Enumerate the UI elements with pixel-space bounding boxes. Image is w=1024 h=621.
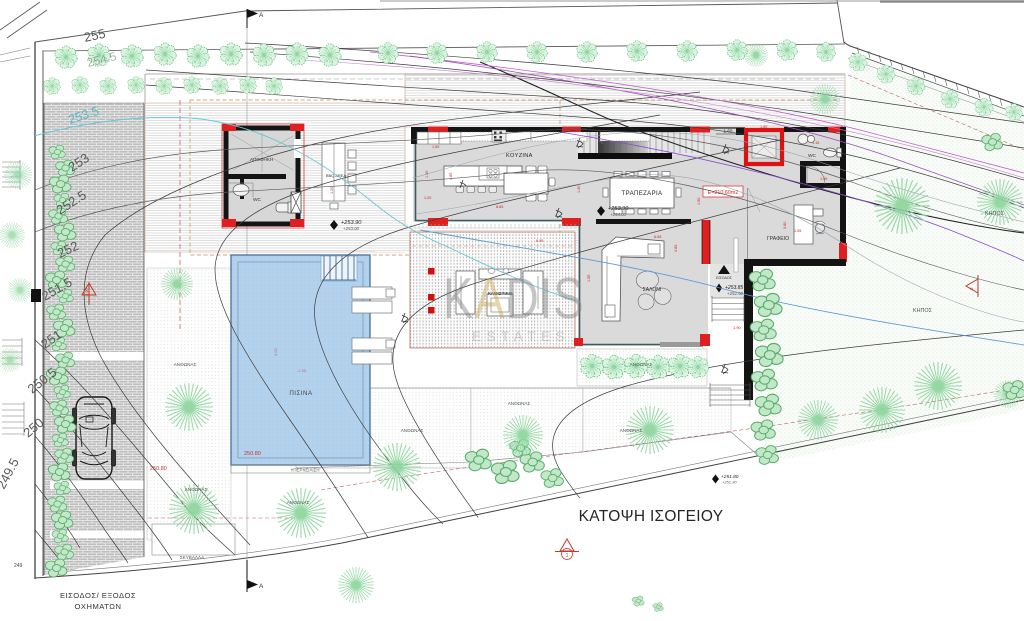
svg-text:BBQ AREA: BBQ AREA: [326, 173, 347, 178]
svg-text:249: 249: [14, 563, 23, 569]
svg-text:1.55: 1.55: [587, 275, 591, 282]
svg-text:-1.50: -1.50: [297, 368, 307, 373]
svg-text:A: A: [259, 12, 264, 19]
svg-text:KOYZINA: KOYZINA: [506, 153, 533, 159]
svg-text:+251.30: +251.30: [722, 480, 737, 485]
svg-text:ΚΗΠΟΣ: ΚΗΠΟΣ: [985, 211, 1005, 217]
svg-text:ΑΝΘΩΝΑΣ: ΑΝΘΩΝΑΣ: [630, 362, 653, 367]
svg-text:ΥΠΕΡΧΕΙΛΙΣΗ: ΥΠΕΡΧΕΙΛΙΣΗ: [290, 468, 319, 473]
svg-text:250.80: 250.80: [244, 451, 261, 457]
svg-text:6.65: 6.65: [654, 235, 661, 239]
svg-text:ΑΝΘΩΝΑΣ: ΑΝΘΩΝΑΣ: [401, 428, 424, 433]
svg-text:1: 1: [566, 553, 569, 559]
svg-text:ΕΙΣΟΔΟΣ: ΕΙΣΟΔΟΣ: [716, 276, 732, 280]
svg-text:1.30: 1.30: [577, 186, 581, 193]
svg-text:ΚΗΠΟΣ: ΚΗΠΟΣ: [913, 308, 933, 314]
svg-text:ΑΝΘΩΝΑΣ: ΑΝΘΩΝΑΣ: [287, 500, 310, 505]
svg-text:ΓΡΑΦΕΙΟ: ΓΡΑΦΕΙΟ: [767, 236, 789, 242]
svg-text:1.15: 1.15: [812, 141, 819, 145]
svg-text:ΠΙΣΙΝΑ: ΠΙΣΙΝΑ: [289, 390, 313, 397]
svg-text:ΟΧΗΜΑΤΩΝ: ΟΧΗΜΑΤΩΝ: [75, 602, 122, 611]
svg-text:1.50: 1.50: [432, 145, 439, 149]
svg-text:ΑΝΘΩΝΑΣ: ΑΝΘΩΝΑΣ: [185, 487, 208, 492]
svg-text:1.50: 1.50: [760, 125, 767, 129]
svg-text:WC: WC: [808, 153, 817, 159]
svg-text:1.55: 1.55: [794, 229, 801, 233]
svg-text:4.85: 4.85: [674, 245, 678, 252]
svg-text:8.85: 8.85: [496, 205, 503, 209]
svg-text:3.80: 3.80: [783, 222, 787, 229]
svg-text:1.05: 1.05: [820, 177, 827, 181]
svg-text:1.60: 1.60: [724, 129, 733, 134]
svg-text:ΑΝΘΩΝΑΣ: ΑΝΘΩΝΑΣ: [174, 362, 197, 367]
svg-text:ΕΙΣΟΔΟΣ/ ΕΞΟΔΟΣ: ΕΙΣΟΔΟΣ/ ΕΞΟΔΟΣ: [60, 591, 136, 600]
svg-text:1.50: 1.50: [697, 198, 701, 205]
svg-text:KADIS: KADIS: [443, 267, 585, 331]
svg-text:ΣΑΛΟΝΙ: ΣΑΛΟΝΙ: [643, 287, 662, 293]
svg-text:ΑΝΘΩΝΑΣ: ΑΝΘΩΝΑΣ: [508, 401, 531, 406]
svg-text:WC: WC: [253, 197, 262, 203]
svg-text:1.20: 1.20: [424, 196, 431, 200]
svg-text:+254.00: +254.00: [610, 212, 627, 217]
svg-text:ESTATES: ESTATES: [472, 329, 570, 344]
svg-text:+253.00: +253.00: [343, 226, 360, 231]
svg-text:6.95: 6.95: [536, 239, 543, 243]
svg-text:A: A: [259, 583, 264, 590]
svg-text:ΤΡΑΠΕΖΑΡΙΑ: ΤΡΑΠΕΖΑΡΙΑ: [622, 191, 663, 197]
svg-text:1.90: 1.90: [733, 325, 742, 330]
svg-text:ΑΝΘΩΝΑΣ: ΑΝΘΩΝΑΣ: [620, 428, 643, 433]
svg-text:4.00: 4.00: [273, 347, 278, 356]
svg-text:ΚΑΤΟΨΗ ΙΣΟΓΕΙΟΥ: ΚΑΤΟΨΗ ΙΣΟΓΕΙΟΥ: [579, 508, 724, 525]
svg-text:ΣΚΥΒΑΛΛΑ: ΣΚΥΒΑΛΛΑ: [180, 555, 205, 560]
svg-text:1.20: 1.20: [330, 187, 334, 194]
